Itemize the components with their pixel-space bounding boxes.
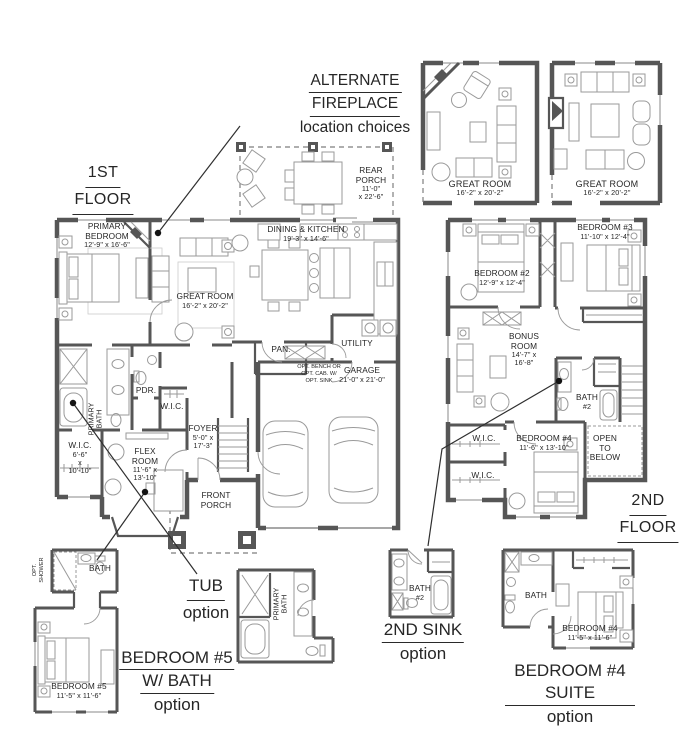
second-floor-title: 2ND FLOOR <box>617 489 678 543</box>
room-label-dining-kitchen: DINING & KITCHEN 19'-3" x 14'-6" <box>267 225 344 243</box>
room-label-primary-bedroom: PRIMARY BEDROOM 12'-9" x 16'-6" <box>75 222 139 249</box>
room-label-powder: PDR. <box>136 386 156 396</box>
room-label-pantry: PAN. <box>271 345 290 355</box>
tub-option-caption: TUB option <box>183 574 229 625</box>
second-sink-bath-label: BATH #2 <box>409 584 431 602</box>
bedroom5-room-label: BEDROOM #5 11'-5" x 11'-6" <box>51 682 106 700</box>
room-label-wic-a: W.I.C. <box>472 434 495 444</box>
tub-option-bath-label: PRIMARY BATH <box>273 588 290 621</box>
room-label-foyer: FOYER 5'-0" x 17'-3" <box>188 424 217 450</box>
room-label-wic-b: W.I.C. <box>471 471 494 481</box>
opt-shower-label: OPT. SHOWER <box>32 557 46 582</box>
room-label-utility: UTILITY <box>341 339 373 349</box>
bedroom5-bath-label: BATH <box>89 564 111 574</box>
note-opt-bench: OPT. BENCH OR OPT. CAB. W/ OPT. SINK <box>297 364 341 385</box>
garage-cars <box>263 417 378 507</box>
floorplan-page: 1ST FLOOR ALTERNATE FIREPLACE location c… <box>0 0 700 744</box>
room-label-bedroom3: BEDROOM #3 11'-10" x 12'-4" <box>577 223 632 241</box>
room-label-wic-hall: W.I.C. <box>160 402 183 412</box>
room-label-bedroom4: BEDROOM #4 11'-6" x 13'-10" <box>516 434 571 452</box>
room-label-great-room: GREAT ROOM 16'-2" x 20'-2" <box>177 292 234 310</box>
room-label-garage: GARAGE 21'-0" x 21'-0" <box>339 366 385 384</box>
room-label-wic-left: W.I.C. 6'-6" x 10'-10" <box>68 441 91 475</box>
room-label-primary-bath: PRIMARY BATH <box>88 403 105 436</box>
room-label-flex: FLEX ROOM 11'-6" x 13'-10" <box>125 447 165 483</box>
bedroom4-suite-option-caption: BEDROOM #4 SUITE option <box>505 660 635 728</box>
first-floor-title: 1ST FLOOR <box>72 161 133 215</box>
alternate-greatroom-b-label: GREAT ROOM 16'-2" x 20'-2" <box>576 179 639 198</box>
alternate-greatroom-a-label: GREAT ROOM 16'-2" x 20'-2" <box>449 179 512 198</box>
alternate-fireplace-note: ALTERNATE FIREPLACE location choices <box>300 70 410 138</box>
bedroom5-option-caption: BEDROOM #5 W/ BATH option <box>119 647 234 715</box>
bedroom4-suite-room-label: BEDROOM #4 11'-5" x 11'-6" <box>562 624 617 642</box>
room-label-bath2: BATH #2 <box>576 393 598 411</box>
second-sink-option-caption: 2ND SINK option <box>382 619 464 665</box>
room-label-front-porch: FRONT PORCH <box>194 491 238 510</box>
room-label-rear-porch: REAR PORCH 11'-0" x 22'-6" <box>347 166 395 202</box>
label-open-to-below: OPEN TO BELOW <box>590 434 620 463</box>
bedroom4-suite-bath-label: BATH <box>525 591 547 601</box>
room-label-bonus: BONUS ROOM 14'-7" x 16'-8" <box>501 332 547 368</box>
room-label-bedroom2: BEDROOM #2 12'-9" x 12'-4" <box>474 269 529 287</box>
